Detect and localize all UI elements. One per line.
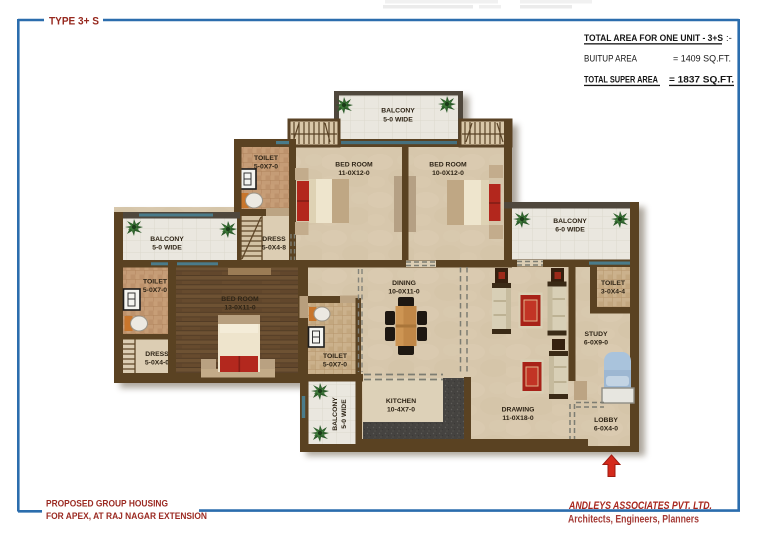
svg-text:FOR APEX, AT RAJ NAGAR EXTENSI: FOR APEX, AT RAJ NAGAR EXTENSION (46, 511, 207, 522)
svg-text:TOILET: TOILET (254, 155, 279, 162)
svg-text:5-0X7-0: 5-0X7-0 (254, 164, 278, 171)
svg-text:DRAWING: DRAWING (502, 407, 535, 414)
svg-text:10-0X11-0: 10-0X11-0 (388, 289, 420, 296)
svg-text:TOTAL AREA FOR ONE UNIT - 3+S: TOTAL AREA FOR ONE UNIT - 3+S (584, 33, 724, 44)
svg-text:TYPE 3+ S: TYPE 3+ S (49, 16, 99, 28)
svg-text:5-0X7-0: 5-0X7-0 (143, 287, 167, 294)
svg-text:6-0 WIDE: 6-0 WIDE (555, 227, 585, 234)
svg-text:5-0X7-0: 5-0X7-0 (323, 362, 347, 369)
svg-text:BALCONY: BALCONY (381, 108, 415, 115)
svg-text:10-0X12-0: 10-0X12-0 (432, 170, 464, 177)
svg-text:= 1837 SQ.FT.: = 1837 SQ.FT. (669, 75, 734, 86)
svg-text:13-0X11-0: 13-0X11-0 (224, 305, 256, 312)
svg-text:11-0X12-0: 11-0X12-0 (338, 170, 370, 177)
svg-text:BED ROOM: BED ROOM (221, 296, 259, 303)
svg-text:5-0 WIDE: 5-0 WIDE (152, 245, 182, 252)
svg-text:BALCONY: BALCONY (553, 218, 587, 225)
svg-text:TOILET: TOILET (143, 279, 168, 286)
svg-text:DRESS: DRESS (145, 351, 169, 358)
svg-text:ANDLEYS ASSOCIATES PVT. LTD.: ANDLEYS ASSOCIATES PVT. LTD. (568, 500, 712, 512)
svg-text:3-0X4-4: 3-0X4-4 (601, 289, 625, 296)
svg-text:BALCONY: BALCONY (332, 397, 339, 431)
svg-text::-: :- (726, 33, 732, 44)
svg-text:5-0X4-0: 5-0X4-0 (145, 360, 169, 367)
svg-text:BED ROOM: BED ROOM (335, 162, 373, 169)
svg-text:5-0 WIDE: 5-0 WIDE (341, 399, 348, 429)
svg-text:BUITUP AREA: BUITUP AREA (584, 54, 637, 65)
svg-text:BALCONY: BALCONY (150, 236, 184, 243)
svg-text:11-0X18-0: 11-0X18-0 (502, 415, 534, 422)
svg-text:Architects, Engineers, Planner: Architects, Engineers, Planners (568, 514, 699, 526)
svg-text:5-0X4-8: 5-0X4-8 (262, 245, 286, 252)
svg-text:BED ROOM: BED ROOM (429, 162, 467, 169)
svg-text:KITCHEN: KITCHEN (386, 398, 416, 405)
svg-text:PROPOSED GROUP HOUSING: PROPOSED GROUP HOUSING (46, 499, 168, 510)
svg-text:TOTAL SUPER AREA: TOTAL SUPER AREA (584, 75, 658, 86)
svg-text:= 1409 SQ.FT.: = 1409 SQ.FT. (673, 54, 731, 65)
svg-text:TOILET: TOILET (601, 280, 626, 287)
svg-text:10-4X7-0: 10-4X7-0 (387, 407, 415, 414)
svg-text:DRESS: DRESS (262, 236, 286, 243)
svg-text:TOILET: TOILET (323, 353, 348, 360)
svg-text:DINING: DINING (392, 280, 416, 287)
svg-text:LOBBY: LOBBY (594, 417, 618, 424)
svg-text:STUDY: STUDY (584, 331, 608, 338)
svg-text:5-0 WIDE: 5-0 WIDE (383, 117, 413, 124)
svg-text:6-0X4-0: 6-0X4-0 (594, 426, 618, 433)
svg-text:6-0X9-0: 6-0X9-0 (584, 340, 608, 347)
